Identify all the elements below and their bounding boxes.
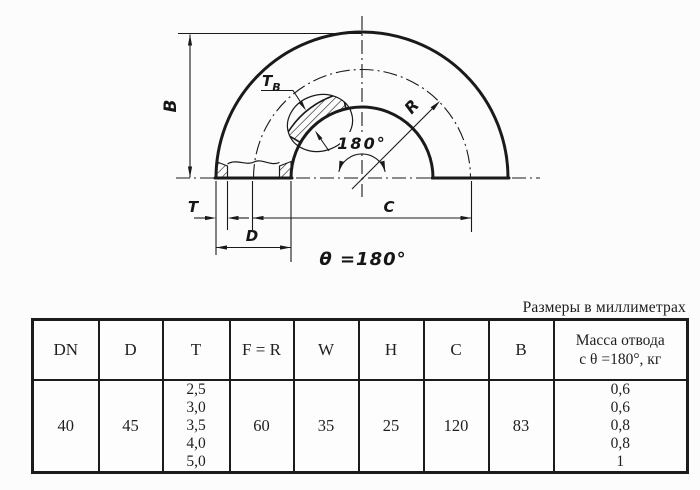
cell-c: 120 [424, 380, 489, 473]
col-header-b: B [489, 320, 554, 380]
cell-w: 35 [294, 380, 359, 473]
cell-dn: 40 [33, 380, 99, 473]
cell-h: 25 [359, 380, 424, 473]
theta-label: θ =180° [319, 249, 406, 270]
col-header-h: H [359, 320, 424, 380]
elbow-technical-drawing: TB B 180° R [0, 0, 700, 300]
col-header-mass: Масса отвода с θ =180°, кг [554, 320, 688, 380]
left-bevel-hatch [216, 162, 228, 179]
angle-label: 180° [337, 134, 386, 153]
cell-mass: 0,6 0,6 0,8 0,8 1 [554, 380, 688, 473]
tb-arrow-inner [315, 131, 323, 141]
cell-d: 45 [99, 380, 163, 473]
col-header-f-r: F = R [230, 320, 294, 380]
table-row: 40 45 2,5 3,0 3,5 4,0 5,0 60 35 25 120 8… [33, 380, 688, 473]
col-header-t: T [163, 320, 230, 380]
cell-t: 2,5 3,0 3,5 4,0 5,0 [163, 380, 230, 473]
units-caption: Размеры в миллиметрах [31, 299, 686, 317]
r-dim-label: R [400, 96, 422, 118]
dim-T: T [188, 181, 249, 255]
col-header-w: W [294, 320, 359, 380]
col-header-d: D [99, 320, 163, 380]
right-bevel-hatch [280, 162, 292, 179]
c-dim-label: C [383, 198, 394, 216]
cell-f-r: 60 [230, 380, 294, 473]
b-dim-label: B [161, 100, 181, 113]
break-wavy-line [228, 161, 280, 164]
cell-b: 83 [489, 380, 554, 473]
col-header-c: C [424, 320, 489, 380]
col-header-dn: DN [33, 320, 99, 380]
dimensions-table: DN D T F = R W H C B Масса отвода с θ =1… [31, 318, 689, 474]
page: TB B 180° R [0, 0, 700, 490]
t-dim-label: T [188, 198, 200, 216]
header-row: DN D T F = R W H C B Масса отвода с θ =1… [33, 320, 688, 380]
